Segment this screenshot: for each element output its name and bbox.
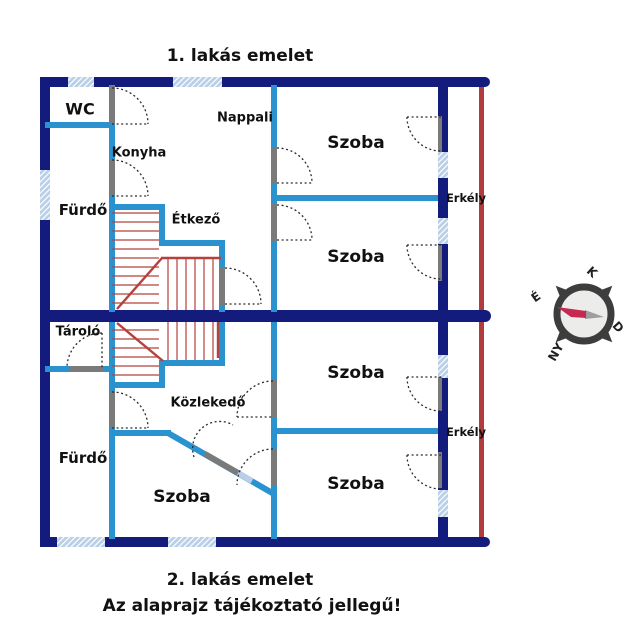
- floorplan-page: { "titles": { "top": "1. lakás emelet", …: [0, 0, 640, 640]
- outer-walls: [40, 77, 491, 547]
- floor1-title: 1. lakás emelet: [167, 46, 314, 66]
- room-label-furdo-f2: Fürdő: [59, 449, 108, 467]
- room-label-szoba-f1-bot: Szoba: [327, 247, 384, 267]
- room-label-etkezo: Étkező: [172, 213, 221, 228]
- compass-rose: [550, 280, 618, 348]
- room-label-konyha: Konyha: [112, 146, 167, 161]
- partitions-floor2: [45, 322, 438, 539]
- disclaimer-note: Az alaprajz tájékoztató jellegű!: [103, 596, 402, 616]
- room-label-szoba-f2-left: Szoba: [153, 487, 210, 507]
- room-label-wc: WC: [65, 100, 94, 119]
- room-label-erkely-f2: Erkély: [446, 425, 486, 439]
- staircase: [112, 213, 221, 375]
- room-label-erkely-f1: Erkély: [446, 191, 486, 205]
- room-label-kozlekedo: Közlekedő: [171, 396, 246, 411]
- room-label-szoba-f2-top: Szoba: [327, 363, 384, 383]
- floor-plan-drawing: [0, 0, 640, 640]
- room-label-furdo-f1: Fürdő: [59, 201, 108, 219]
- room-label-tarolo: Tároló: [56, 325, 101, 340]
- room-label-szoba-f1-top: Szoba: [327, 133, 384, 153]
- room-label-nappali: Nappali: [217, 111, 273, 126]
- floor2-title: 2. lakás emelet: [167, 570, 314, 590]
- room-label-szoba-f2-bot: Szoba: [327, 474, 384, 494]
